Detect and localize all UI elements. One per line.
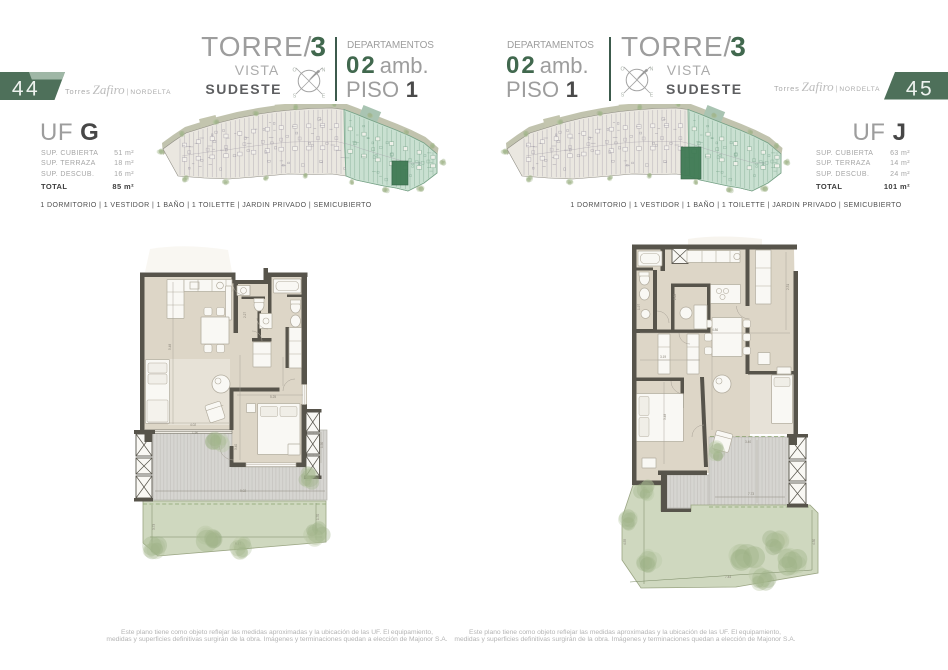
- svg-text:S: S: [621, 93, 625, 98]
- svg-text:E: E: [650, 93, 654, 98]
- svg-text:O: O: [292, 68, 296, 74]
- svg-text:1.50: 1.50: [320, 442, 324, 448]
- svg-text:7.44: 7.44: [725, 575, 731, 579]
- svg-text:O: O: [620, 67, 624, 73]
- svg-text:4.55: 4.55: [623, 539, 627, 545]
- svg-text:44: 44: [12, 78, 40, 101]
- svg-text:3.40: 3.40: [745, 440, 751, 444]
- svg-text:1.90: 1.90: [192, 431, 198, 435]
- svg-text:5.48: 5.48: [168, 344, 172, 350]
- svg-text:3.48: 3.48: [663, 414, 667, 420]
- svg-text:1.70: 1.70: [316, 514, 320, 520]
- svg-text:N: N: [650, 67, 654, 73]
- svg-text:3.19: 3.19: [660, 355, 666, 359]
- svg-text:4.30: 4.30: [812, 539, 816, 545]
- svg-text:7.73: 7.73: [748, 492, 754, 496]
- svg-text:4.86: 4.86: [712, 328, 718, 332]
- svg-text:3.73: 3.73: [152, 524, 156, 530]
- svg-text:S: S: [293, 94, 297, 99]
- svg-text:E: E: [322, 94, 326, 99]
- svg-text:N: N: [322, 68, 326, 74]
- svg-text:9.02: 9.02: [240, 489, 246, 493]
- svg-text:4.02: 4.02: [190, 423, 196, 427]
- svg-text:5.25: 5.25: [270, 395, 276, 399]
- svg-text:2.31: 2.31: [786, 284, 790, 290]
- svg-text:3.40: 3.40: [234, 444, 238, 450]
- svg-text:1.97: 1.97: [637, 304, 641, 310]
- svg-text:2.27: 2.27: [243, 312, 247, 318]
- svg-text:2.63: 2.63: [673, 294, 677, 300]
- svg-text:45: 45: [906, 78, 934, 101]
